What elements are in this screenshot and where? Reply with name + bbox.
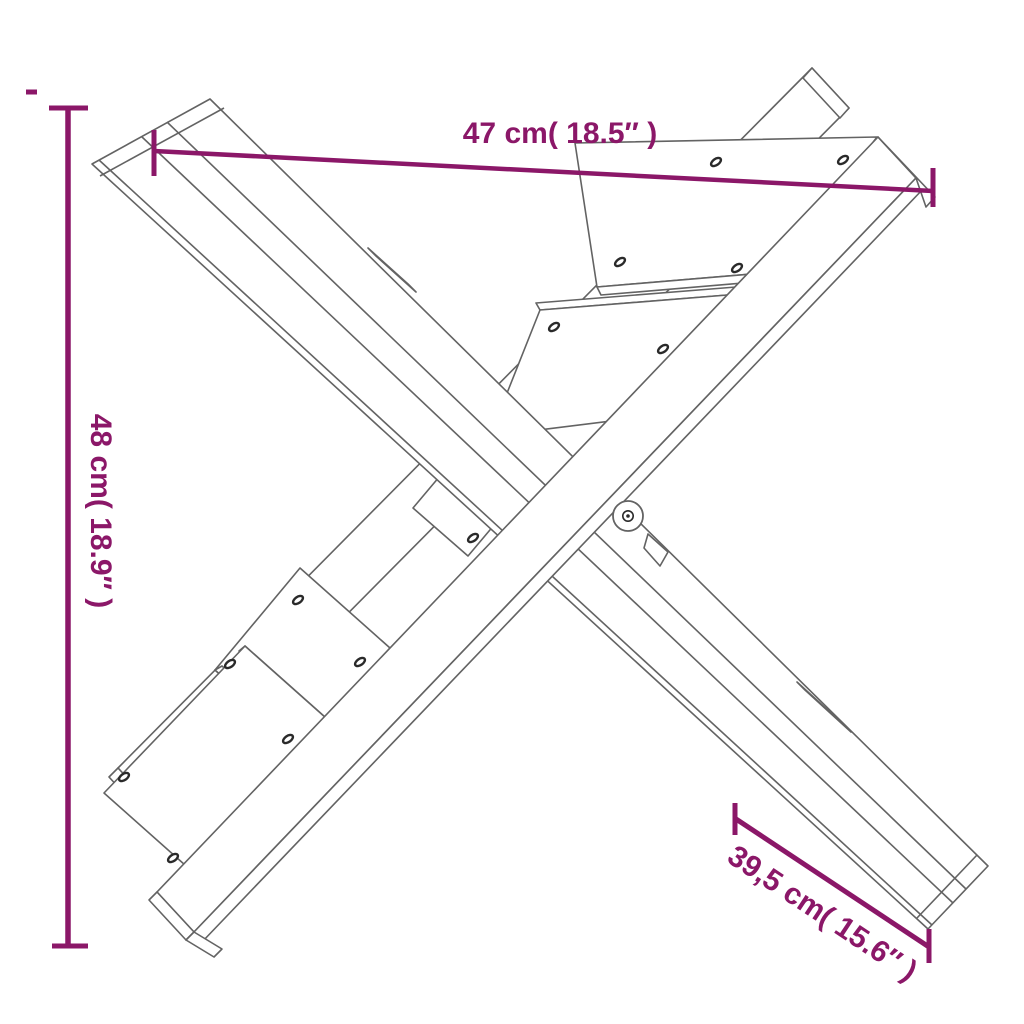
bolt-icon [626, 514, 630, 518]
dimension-label-width: 47 cm( 18.5″ ) [370, 117, 750, 151]
screw-icon [167, 852, 180, 864]
dimension-label-height: 48 cm( 18.9″ ) [83, 321, 117, 701]
product-dimension-image: 47 cm( 18.5″ ) 48 cm( 18.9″ ) 39,5 cm( 1… [0, 0, 1024, 1024]
line-drawing [0, 0, 1024, 1024]
